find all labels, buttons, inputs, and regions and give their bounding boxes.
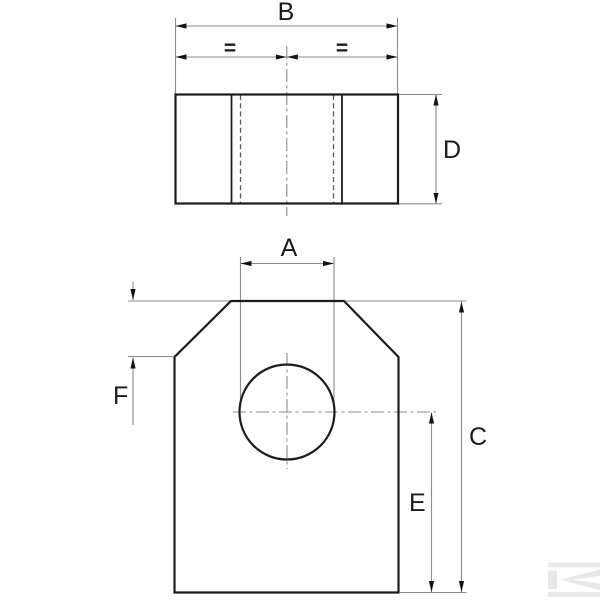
drawing-canvas: B = = D A F C E [0, 0, 600, 600]
dim-label-b: B [278, 0, 295, 26]
dim-label-f: F [113, 382, 128, 410]
dim-label-d: D [443, 136, 461, 164]
dim-label-e: E [409, 489, 426, 517]
watermark-k-upper-arm [560, 570, 600, 580]
watermark-bottom-stripe [548, 592, 600, 597]
front-view-dimension-lines [128, 257, 467, 593]
watermark-top-stripe [548, 563, 600, 568]
dim-label-a: A [281, 234, 298, 262]
kramp-logo-watermark [548, 563, 600, 597]
watermark-k-lower-arm [560, 580, 600, 590]
watermark-k-stem [548, 571, 557, 590]
dim-label-equal-left: = [224, 37, 236, 60]
dim-label-c: C [469, 423, 487, 451]
top-view-dimension-lines [176, 18, 443, 204]
technical-drawing: B = = D A F C E [0, 0, 600, 600]
dim-label-equal-right: = [336, 37, 348, 60]
